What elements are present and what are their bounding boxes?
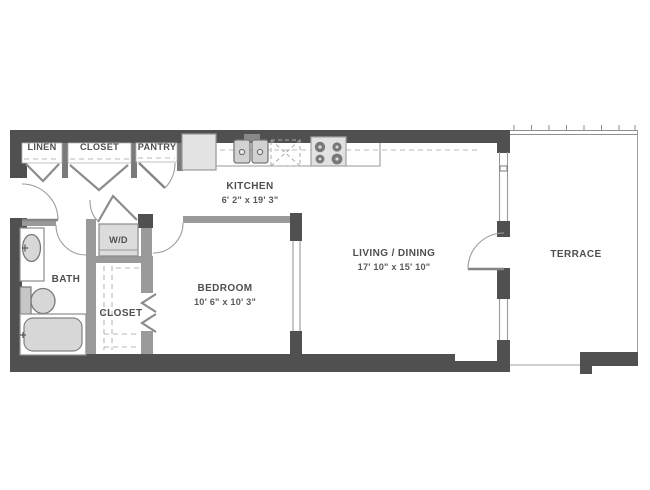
sink-drain-right	[257, 149, 262, 154]
room-label-bedroom-closet: CLOSET	[100, 308, 143, 319]
toilet-tank	[20, 287, 31, 316]
bedroom-closet-bifold-lower-icon	[142, 314, 156, 332]
wall-right-seg2	[497, 268, 510, 299]
terrace-railing-ticks	[514, 125, 635, 130]
bedroom-partition-window	[293, 241, 300, 331]
living-window-lower	[500, 299, 508, 340]
burner-1-dot	[318, 145, 321, 148]
window-mullion-mark	[500, 166, 507, 171]
wall-bedroom-top	[183, 216, 290, 223]
refrigerator-icon	[182, 134, 216, 170]
wall-closet-right-lower	[141, 331, 153, 354]
bathtub-icon	[20, 314, 86, 355]
wall-bedroom-corner-upper	[290, 213, 302, 241]
wall-bedroom-corner-lower	[290, 331, 302, 355]
wall-wd-corner	[138, 214, 153, 228]
burner-3-dot	[319, 158, 322, 161]
room-dims-bedroom: 10' 6" x 10' 3"	[194, 297, 256, 307]
toilet-icon	[20, 287, 55, 316]
wd-door-swing-arc	[90, 200, 98, 221]
bath-door-swing-arc	[56, 225, 86, 255]
dishwasher-icon	[271, 140, 300, 166]
terrace-boundary	[510, 125, 638, 365]
wall-terrace-corner-step	[580, 366, 592, 374]
terrace-railing-top	[510, 131, 638, 135]
room-label-bath: BATH	[52, 274, 81, 285]
floorplan: LINEN CLOSET PANTRY KITCHEN 6' 2" x 19' …	[0, 0, 650, 490]
wall-bottom-main	[10, 354, 455, 372]
wd-bifold-door-icon	[98, 196, 137, 222]
room-label-wd: W/D	[109, 235, 128, 245]
bedroom-door-swing-arc	[153, 223, 183, 253]
wall-right-corner	[497, 130, 510, 153]
stove-icon	[311, 137, 346, 166]
wall-right-seg3	[497, 340, 510, 372]
bedroom-closet-bifold-upper-icon	[142, 294, 156, 312]
room-label-living-dining: LIVING / DINING	[353, 248, 436, 259]
entry-door-swing-arc	[22, 184, 58, 220]
terrace-door-swing-arc	[468, 233, 504, 269]
floorplan-drawing: LINEN CLOSET PANTRY KITCHEN 6' 2" x 19' …	[0, 0, 650, 490]
windows	[293, 152, 508, 340]
burner-2-dot	[336, 146, 339, 149]
wall-terrace-corner	[580, 352, 638, 366]
wall-stub-linen-closet	[62, 143, 68, 178]
dishwasher-cross	[271, 140, 300, 166]
wall-bath-right	[86, 219, 96, 354]
room-dims-living-dining: 17' 10" x 15' 10"	[358, 262, 431, 272]
pantry-door-leaf	[139, 163, 165, 188]
dishwasher-outline	[271, 140, 300, 166]
wall-right-seg1	[497, 221, 510, 237]
room-label-pantry: PANTRY	[138, 142, 177, 152]
living-window-upper	[500, 152, 508, 221]
closet-bifold-door-icon	[70, 165, 128, 190]
pantry-door-swing-arc	[165, 163, 175, 188]
room-label-kitchen: KITCHEN	[226, 181, 273, 192]
room-label-terrace: TERRACE	[550, 249, 601, 260]
room-label-bedroom: BEDROOM	[197, 283, 252, 294]
tub-basin	[24, 318, 82, 351]
bath-fixtures	[20, 228, 86, 355]
linen-bifold-door-icon	[26, 164, 59, 181]
burner-4-dot	[335, 157, 338, 160]
toilet-bowl	[31, 289, 55, 314]
room-dims-kitchen: 6' 2" x 19' 3"	[222, 195, 279, 205]
wall-wd-bottom	[86, 256, 153, 263]
wall-closet-right-upper	[141, 263, 153, 293]
room-label-linen: LINEN	[27, 142, 56, 152]
sink-drain-left	[239, 149, 244, 154]
room-label-hall-closet: CLOSET	[80, 142, 119, 152]
